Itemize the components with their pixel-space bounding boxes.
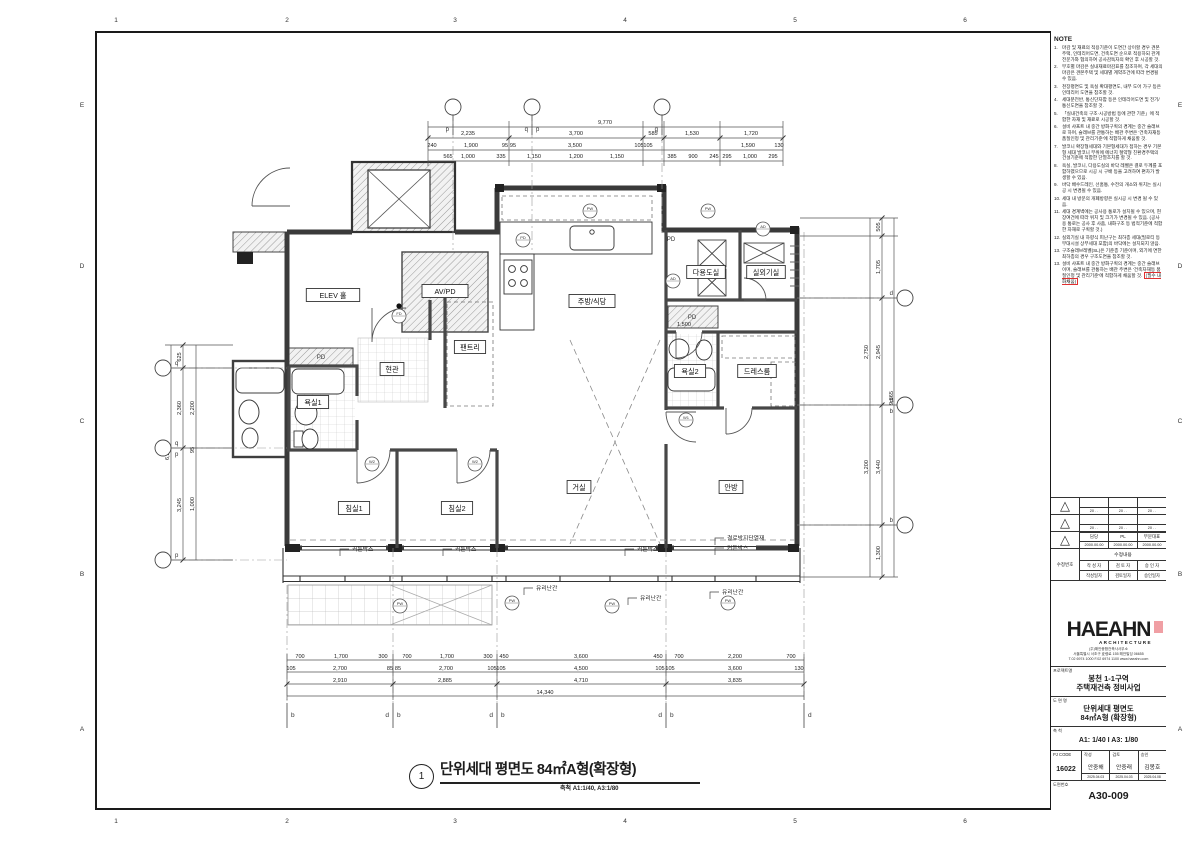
project-line1: 봉천 1-1구역 [1051, 674, 1166, 683]
scale-cell: 축 척 A1: 1/40 I A3: 1/80 [1051, 727, 1166, 751]
revision-no-label: 수정번호 [1051, 549, 1080, 580]
note-item: 8.욕실, 발코니, 다용도실의 바닥 레벨은 결로 두께를 포함하였으므로 시… [1054, 163, 1163, 181]
drawing-number: A30-009 [1051, 790, 1166, 802]
note-item: 12.실외기실 내 하향식 피난구는 최하층 세대(필로티 등 부대시설 상부세… [1054, 235, 1163, 247]
logo-stamp [1154, 621, 1163, 633]
note-item: 9.바닥 배수드레인, 선홈통, 수전의 개소와 위치는 실시공 시 변경될 수… [1054, 182, 1163, 194]
notes-heading: NOTE [1054, 36, 1165, 43]
approval-cell: PJ CODE16022작성안중해2025.04.03검토안중래2025.04.… [1051, 751, 1166, 781]
project-label: 프로젝트명 [1053, 668, 1072, 674]
scale-label: 축 척 [1053, 728, 1062, 734]
company-address: (주)해안종합건축사사무소 서울특별시 서초구 효령로 155 해안빌딩 066… [1051, 647, 1166, 662]
drawing-number-cell: 도면번호 A30-009 [1051, 781, 1166, 810]
scale-value: A1: 1/40 I A3: 1/80 [1051, 737, 1166, 744]
view-scale-note: 축척 A1:1/40, A3:1/80 [560, 783, 619, 792]
note-item: 10.세대 내 방문의 개폐방향은 실시공 시 변경 될 수 있음. [1054, 196, 1163, 208]
revision-row: △20 . .20 . .20 . . [1051, 515, 1166, 532]
note-item: 13.설비 샤프트 내 중간 방화구획의 경계는 중간 슬래브이며, 슬래브를 … [1054, 261, 1163, 285]
revision-writer-headers: 작 성 자검 토 자승 인 자 [1080, 561, 1166, 571]
note-item: 13.구조슬래브레벨(SL)은 기준층 기준이며, 외기에 면한 최하층의 경우… [1054, 248, 1163, 260]
revision-row: △담당PL부문대표2000.00.002000.00.002000.00.00 [1051, 532, 1166, 549]
revision-table: △20 . .20 . .20 . .△20 . .20 . .20 . .△담… [1051, 497, 1166, 581]
note-item: 7.발코니 확장형세대와 기본형세대가 접하는 경우 기본형 세대 발코니 부위… [1054, 144, 1163, 162]
company-logo: HAEAHN [1051, 619, 1166, 640]
pj-code-label: PJ CODE [1051, 751, 1081, 759]
drawing-name-line2: 84㎡A형 (확장형) [1051, 713, 1166, 722]
revision-triangle-icon: △ [1051, 498, 1080, 514]
staff-column: 승인김봉호2025.04.08 [1139, 751, 1166, 780]
notes-panel: NOTE 1.마감 및 재료의 적용기준이 도면간 상이할 경우 견본주택, 인… [1051, 33, 1165, 497]
project-name-cell: 프로젝트명 봉천 1-1구역 주택재건축 정비사업 [1051, 667, 1166, 697]
staff-column: 작성안중해2025.04.03 [1082, 751, 1110, 780]
project-line2: 주택재건축 정비사업 [1051, 683, 1166, 692]
drawing-name-label: 도 면 명 [1053, 698, 1067, 704]
revision-row: △20 . .20 . .20 . . [1051, 498, 1166, 515]
note-item: 11.세대 경계벽에는 공사용 통로가 설치될 수 있으며, 현장여건에 따라 … [1054, 209, 1163, 233]
revision-date-headers: 작성일자검토일자승인일자 [1080, 571, 1166, 580]
note-item: 1.마감 및 재료의 적용기준이 도면간 상이할 경우 견본주택, 인테리어도면… [1054, 45, 1163, 63]
drawing-name-line1: 단위세대 평면도 [1051, 704, 1166, 713]
revision-triangle-icon: △ [1051, 532, 1080, 548]
note-item: 4.세대분전반, 통신단자함 등은 인테리어도면 및 전기/통신도면을 참조할 … [1054, 97, 1163, 109]
drawing-sheet: 9,7702,2353,7005851,5301,7202401,9009595… [0, 0, 1191, 842]
drawing-name-cell: 도 면 명 단위세대 평면도 84㎡A형 (확장형) [1051, 697, 1166, 727]
notes-list: 1.마감 및 재료의 적용기준이 도면간 상이할 경우 견본주택, 인테리어도면… [1051, 45, 1165, 285]
view-number-bubble: 1 [409, 764, 434, 789]
company-block: HAEAHN ARCHITECTURE (주)해안종합건축사사무소 서울특별시 … [1051, 613, 1166, 667]
pj-code: 16022 [1051, 759, 1081, 780]
note-item: 5.「실내건축의 구조·시공방법 등에 관한 기준」에 적합한 자재 및 재료로… [1054, 111, 1163, 123]
note-item: 3.천장평면도 및 욕실 확대평면도, 내부 도어 가구 등은 인테리어 도면을… [1054, 84, 1163, 96]
revision-triangle-icon: △ [1051, 515, 1080, 531]
staff-column: 검토안중래2025.04.03 [1110, 751, 1138, 780]
drawing-border [95, 31, 1166, 810]
note-item: 2.부호별 마감은 실내재료마감표를 참조하며, 각 세대의 마감은 견본주택 … [1054, 64, 1163, 82]
note-item: 6.설비 샤프트 내 중간 방화구획의 경계는 중간 슬래브로 하며, 슬래브를… [1054, 124, 1163, 142]
drawing-number-label: 도면번호 [1053, 782, 1068, 788]
view-title: 단위세대 평면도 84㎡A형(확장형) [440, 758, 700, 784]
revision-content-label: 수정내용 [1080, 549, 1166, 561]
